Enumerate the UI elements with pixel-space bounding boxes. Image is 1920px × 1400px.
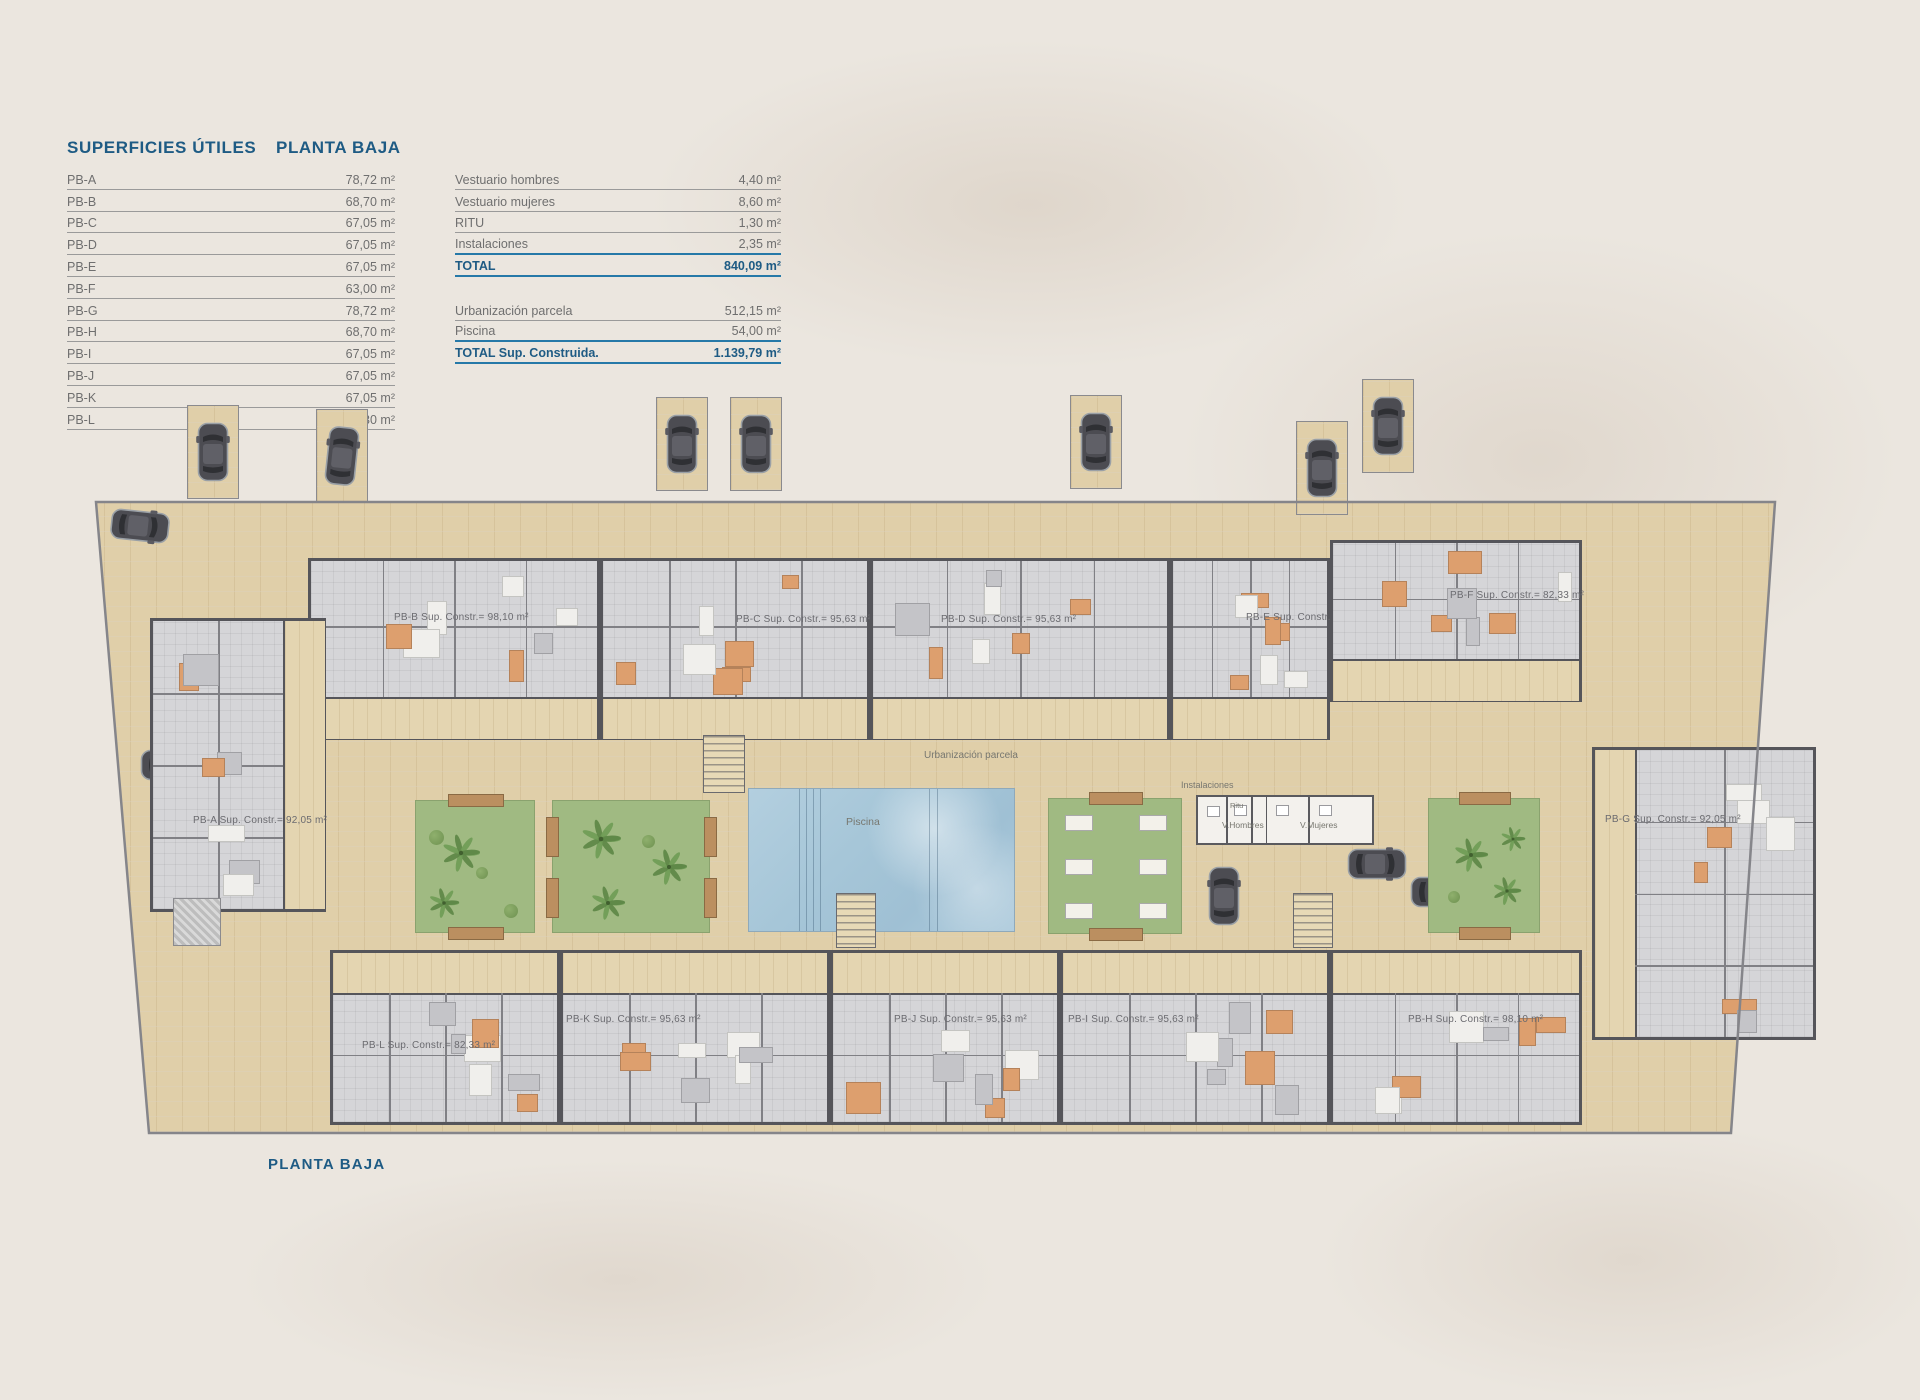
furniture: [1483, 1027, 1508, 1041]
pool-lane-line: [799, 789, 800, 931]
unit-pb-e: [1170, 558, 1330, 740]
unit-pb-g: [1592, 747, 1816, 1040]
stairs: [836, 893, 876, 948]
sunbed: [1139, 815, 1167, 831]
sunbed: [1139, 903, 1167, 919]
furniture: [509, 650, 523, 682]
planter-bench: [448, 794, 503, 807]
furniture: [739, 1047, 773, 1063]
palm-tree-icon: [441, 833, 481, 873]
unit-patio: [1333, 953, 1579, 995]
furniture: [929, 647, 944, 679]
interior-wall: [1266, 797, 1268, 843]
floor-plan: PB-B Sup. Constr.= 98,10 m²PB-C Sup. Con…: [0, 0, 1920, 1357]
palm-tree-icon: [580, 818, 622, 860]
unit-pb-l: [330, 950, 560, 1125]
planter-bench: [1459, 792, 1511, 805]
page: { "tables": { "title_main": "SUPERFICIES…: [0, 0, 1920, 1357]
furniture: [223, 874, 253, 896]
palm-tree-icon: [1492, 876, 1522, 906]
unit-patio: [563, 953, 827, 995]
palm-tree-icon: [650, 848, 688, 886]
pergola-area: [1048, 798, 1182, 934]
partition-wall: [333, 1055, 557, 1057]
planter-bench: [1089, 928, 1143, 941]
pool-lane-line: [937, 789, 938, 931]
unit-patio: [1333, 659, 1579, 701]
furniture: [1186, 1032, 1219, 1062]
utility-box: [173, 898, 221, 946]
furniture: [1003, 1068, 1020, 1091]
palm-tree-icon: [590, 885, 626, 921]
furniture: [1489, 613, 1516, 633]
furniture: [429, 1002, 456, 1026]
furniture: [1275, 1085, 1299, 1114]
partition-wall: [1518, 543, 1520, 659]
car-icon: [1207, 865, 1241, 927]
partition-wall: [669, 561, 671, 697]
partition-wall: [454, 561, 456, 697]
car-icon: [1346, 847, 1408, 881]
furniture: [725, 641, 754, 667]
car-icon: [322, 423, 362, 488]
palm-tree-icon: [1453, 837, 1489, 873]
unit-area-label: PB-K Sup. Constr.= 95,63 m²: [566, 1014, 701, 1025]
partition-wall: [1250, 561, 1252, 697]
unit-patio: [1173, 697, 1327, 739]
furniture: [183, 654, 220, 686]
furniture: [1694, 862, 1708, 883]
palm-tree-icon: [1500, 826, 1526, 852]
unit-pb-h: [1330, 950, 1582, 1125]
furniture: [681, 1078, 710, 1104]
furniture: [1382, 581, 1407, 607]
unit-patio: [283, 621, 325, 909]
partition-wall: [603, 626, 867, 628]
sunbed: [1065, 815, 1093, 831]
furniture: [517, 1094, 538, 1112]
bush-icon: [642, 835, 655, 848]
urbanizacion-label: Urbanización parcela: [924, 750, 1018, 761]
furniture: [616, 662, 636, 685]
unit-pb-i: [1060, 950, 1330, 1125]
unit-patio: [833, 953, 1057, 995]
partition-wall: [1173, 626, 1327, 628]
partition-wall: [1518, 993, 1520, 1122]
furniture: [782, 575, 800, 589]
furniture: [534, 633, 554, 653]
furniture: [972, 639, 990, 664]
sanitary-fixture: [1319, 805, 1332, 816]
car-icon: [107, 506, 172, 546]
garden: [415, 800, 535, 933]
unit-area-label: PB-F Sup. Constr.= 82,33 m²: [1450, 590, 1584, 601]
car-icon: [1371, 395, 1405, 457]
sunbed: [1065, 859, 1093, 875]
swimming-pool: [748, 788, 1015, 932]
partition-wall: [801, 561, 803, 697]
furniture: [1229, 1002, 1251, 1034]
furniture: [1070, 599, 1091, 615]
partition-wall: [1333, 1055, 1579, 1057]
unit-area-label: PB-L Sup. Constr.= 82,33 m²: [362, 1040, 495, 1051]
unit-patio: [1063, 953, 1327, 995]
instalaciones-label: Instalaciones: [1181, 780, 1234, 790]
unit-patio: [311, 697, 597, 739]
unit-pb-k: [560, 950, 830, 1125]
car-icon: [196, 421, 230, 483]
partition-wall: [1129, 993, 1131, 1122]
unit-area-label: PB-A Sup. Constr.= 92,05 m²: [193, 815, 327, 826]
furniture: [556, 608, 578, 626]
furniture: [1448, 551, 1482, 574]
unit-patio: [603, 697, 867, 739]
unit-pb-a: [150, 618, 326, 912]
partition-wall: [501, 993, 503, 1122]
furniture: [1766, 817, 1795, 851]
furniture: [941, 1030, 970, 1052]
furniture: [895, 603, 930, 635]
piscina-label: Piscina: [846, 816, 880, 828]
sanitary-fixture: [1276, 805, 1289, 816]
furniture: [620, 1052, 651, 1071]
furniture: [202, 758, 225, 777]
furniture: [1737, 800, 1770, 824]
planter-bench: [1459, 927, 1511, 940]
furniture: [1284, 671, 1308, 688]
partition-wall: [947, 561, 949, 697]
furniture: [1375, 1087, 1400, 1113]
furniture: [846, 1082, 880, 1114]
planter-bench: [546, 817, 559, 857]
furniture: [1230, 675, 1249, 690]
v-mujeres-label: V.Mujeres: [1300, 820, 1337, 830]
palm-tree-icon: [428, 887, 460, 919]
car-icon: [739, 413, 773, 475]
furniture: [1466, 617, 1481, 647]
unit-area-label: PB-G Sup. Constr.= 92,05 m²: [1605, 814, 1741, 825]
sunbed: [1065, 903, 1093, 919]
sanitary-fixture: [1207, 806, 1220, 817]
v-hombres-label: V.Hombres: [1222, 820, 1264, 830]
stairs: [1293, 893, 1333, 948]
unit-patio: [1595, 750, 1637, 1037]
plan-caption: PLANTA BAJA: [268, 1156, 385, 1173]
furniture: [1260, 655, 1278, 684]
partition-wall: [311, 626, 597, 628]
partition-wall: [889, 993, 891, 1122]
unit-area-label: PB-I Sup. Constr.= 95,63 m²: [1068, 1014, 1199, 1025]
unit-pb-c: [600, 558, 870, 740]
furniture: [933, 1054, 964, 1082]
furniture: [502, 576, 524, 596]
furniture: [678, 1043, 706, 1058]
unit-area-label: PB-D Sup. Constr.= 95,63 m²: [941, 614, 1076, 625]
unit-area-label: PB-C Sup. Constr.= 95,63 m²: [736, 614, 871, 625]
furniture: [1245, 1051, 1275, 1085]
ritu-label: Ritu: [1230, 801, 1243, 810]
unit-pb-j: [830, 950, 1060, 1125]
furniture: [508, 1074, 541, 1091]
furniture: [1737, 1010, 1757, 1033]
partition-wall: [1212, 561, 1214, 697]
unit-pb-f: [1330, 540, 1582, 702]
partition-wall: [1094, 561, 1096, 697]
planter-bench: [704, 817, 717, 857]
unit-pb-b: [308, 558, 600, 740]
planter-bench: [448, 927, 503, 940]
garden: [1428, 798, 1540, 933]
sunbed: [1139, 859, 1167, 875]
furniture: [986, 570, 1002, 587]
planter-bench: [704, 878, 717, 918]
furniture: [469, 1064, 491, 1096]
planter-bench: [1089, 792, 1143, 805]
partition-wall: [1020, 561, 1022, 697]
unit-patio: [333, 953, 557, 995]
unit-pb-d: [870, 558, 1170, 740]
unit-area-label: PB-H Sup. Constr.= 98,10 m²: [1408, 1014, 1543, 1025]
car-icon: [1079, 411, 1113, 473]
garden: [552, 800, 710, 933]
furniture: [1707, 827, 1732, 848]
furniture: [1012, 633, 1029, 654]
unit-area-label: PB-J Sup. Constr.= 95,63 m²: [894, 1014, 1027, 1025]
furniture: [683, 644, 716, 675]
pool-lane-line: [806, 789, 807, 931]
planter-bench: [546, 878, 559, 918]
unit-patio: [873, 697, 1167, 739]
furniture: [975, 1074, 994, 1104]
furniture: [1266, 1010, 1293, 1034]
pool-lane-line: [813, 789, 814, 931]
unit-area-label: PB-B Sup. Constr.= 98,10 m²: [394, 612, 529, 623]
furniture: [1207, 1069, 1226, 1085]
stairs: [703, 735, 745, 793]
furniture: [713, 668, 744, 695]
car-icon: [665, 413, 699, 475]
bush-icon: [504, 904, 518, 918]
furniture: [208, 825, 245, 842]
partition-wall: [526, 561, 528, 697]
pool-water-highlight: [749, 789, 1014, 931]
partition-wall: [383, 561, 385, 697]
pool-lane-line: [820, 789, 821, 931]
pool-lane-line: [929, 789, 930, 931]
furniture: [699, 606, 714, 637]
car-icon: [1305, 437, 1339, 499]
furniture: [386, 624, 412, 648]
partition-wall: [389, 993, 391, 1122]
bush-icon: [1448, 891, 1460, 903]
furniture: [984, 583, 1001, 616]
